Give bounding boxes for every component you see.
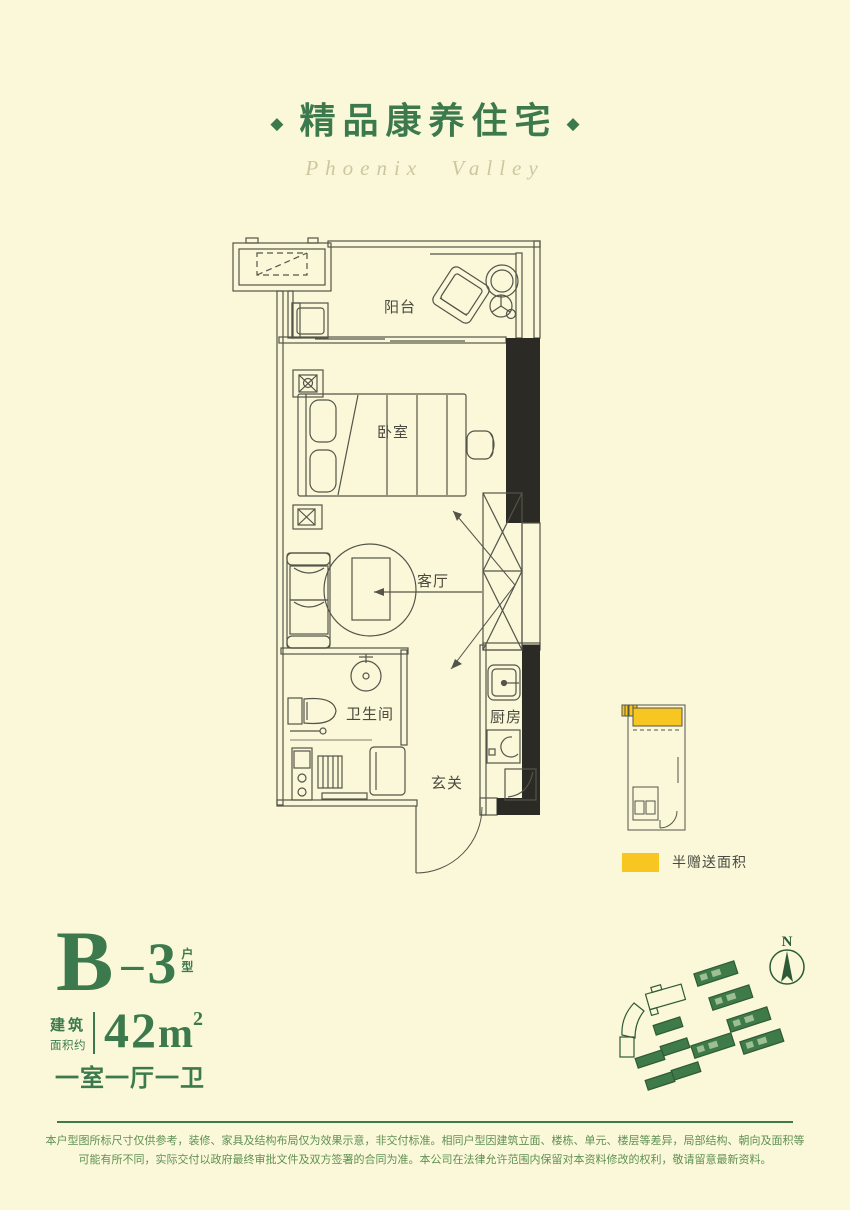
room-label-kitchen: 厨房 <box>490 709 522 726</box>
legend-label: 半赠送面积 <box>672 852 747 872</box>
legend-swatch <box>622 853 659 872</box>
flyer-page: ◆精品康养住宅◆ Phoenix Valley <box>0 0 850 1210</box>
bathroom-furniture <box>281 648 408 800</box>
page-title: ◆精品康养住宅◆ <box>0 92 850 144</box>
title-text: 精品康养住宅 <box>299 100 557 141</box>
unit-info: B – 3 户 型 建筑 面积约 42m2 一室一厅一卫 <box>50 928 300 1088</box>
area-value: 42 <box>104 1002 158 1058</box>
room-label-living-room: 客厅 <box>417 573 449 590</box>
unit-type-label: 户 型 <box>181 948 193 974</box>
disclaimer-line-2: 可能有所不同，实际交付以政府最终审批文件及双方签署的合同为准。本公司在法律允许范… <box>0 1151 850 1170</box>
room-label-balcony: 阳台 <box>384 299 416 316</box>
floor-plan: 阳台 卧室 <box>220 228 550 888</box>
area-label-top: 建筑 <box>50 1014 86 1035</box>
unit-type-char-2: 型 <box>181 961 193 974</box>
room-label-bathroom: 卫生间 <box>346 706 394 723</box>
diamond-icon: ◆ <box>567 114 580 133</box>
area-divider-line <box>93 1012 95 1054</box>
unit-area: 建筑 面积约 42m2 <box>50 1008 203 1058</box>
gifted-area-highlight <box>633 708 682 726</box>
entry-door <box>416 806 482 873</box>
unit-code-number: 3 <box>147 942 176 986</box>
area-label-bottom: 面积约 <box>50 1037 86 1053</box>
site-plan: N <box>612 925 832 1095</box>
unit-code-letter: B <box>56 928 113 995</box>
room-label-entry: 玄关 <box>431 775 463 792</box>
area-unit: m <box>158 1011 193 1057</box>
area-value-group: 42m2 <box>104 1008 203 1058</box>
unit-locator-map <box>612 695 712 840</box>
area-labels: 建筑 面积约 <box>50 1014 86 1053</box>
header: ◆精品康养住宅◆ Phoenix Valley <box>0 92 850 181</box>
area-exponent: 2 <box>193 1008 203 1030</box>
divider-line <box>57 1121 793 1123</box>
unit-code: B – 3 户 型 <box>56 928 193 995</box>
compass-icon: N <box>770 934 804 984</box>
disclaimer-line-1: 本户型图所标尺寸仅供参考，装修、家具及结构布局仅为效果示意，非交付标准。相同户型… <box>0 1132 850 1151</box>
diamond-icon: ◆ <box>270 114 283 133</box>
ac-platform <box>233 238 331 291</box>
page-subtitle: Phoenix Valley <box>0 156 850 181</box>
unit-code-dash: – <box>121 954 143 976</box>
site-buildings-filled <box>635 961 784 1090</box>
room-label-bedroom: 卧室 <box>377 424 409 441</box>
unit-layout-desc: 一室一厅一卫 <box>55 1058 205 1093</box>
disclaimer: 本户型图所标尺寸仅供参考，装修、家具及结构布局仅为效果示意，非交付标准。相同户型… <box>0 1132 850 1170</box>
mini-map-legend: 半赠送面积 <box>622 852 747 872</box>
compass-label: N <box>782 934 793 950</box>
